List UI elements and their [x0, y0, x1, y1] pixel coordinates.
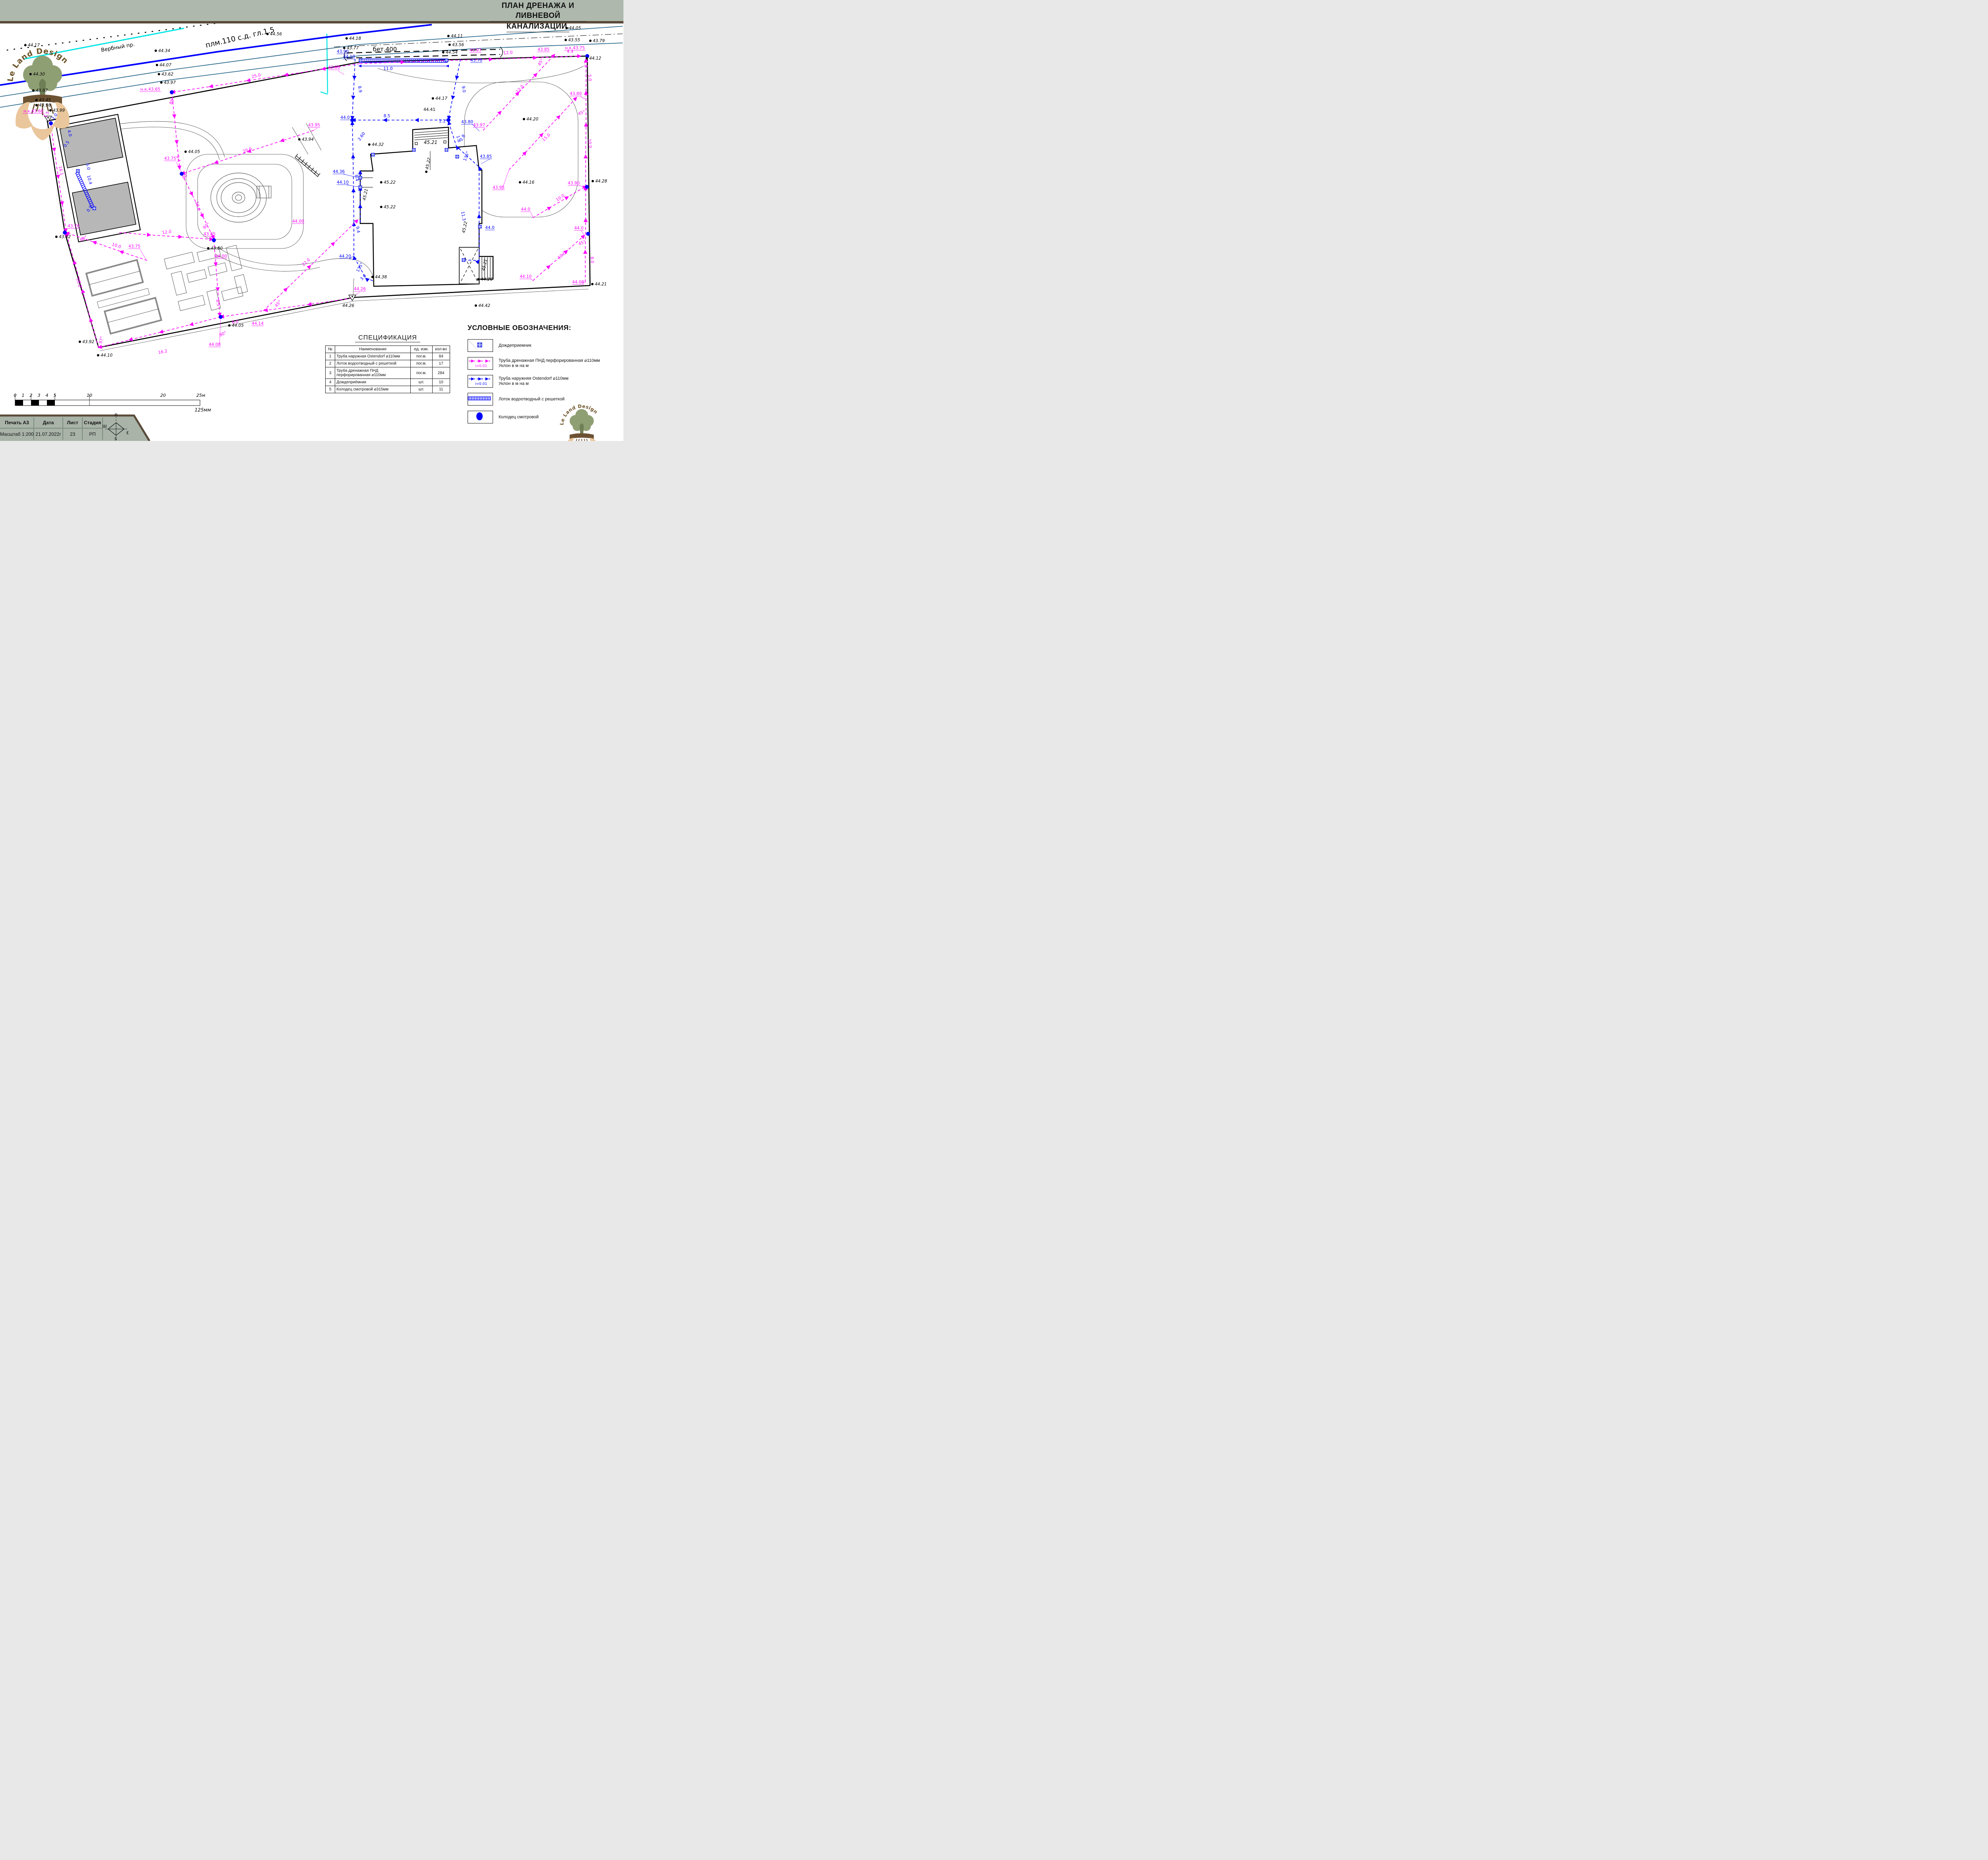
svg-text:5.0: 5.0: [587, 74, 592, 82]
svg-text:44.0: 44.0: [521, 207, 530, 212]
plan-label: 8.4: [354, 174, 360, 182]
plan-label: s: [115, 436, 117, 441]
plan-label: 44.20: [523, 117, 539, 122]
svg-text:44.10: 44.10: [337, 180, 349, 185]
deck: [459, 247, 479, 284]
spec-row: 3Труба дренажная ПНД перфорированная ⌀11…: [326, 367, 450, 379]
plan-label: 8.5: [384, 114, 390, 118]
svg-text:43.97: 43.97: [473, 123, 485, 128]
svg-text:44.17: 44.17: [435, 96, 447, 101]
svg-text:20.0: 20.0: [242, 147, 252, 154]
inspection-well: [170, 90, 174, 94]
svg-text:44.38: 44.38: [375, 275, 387, 280]
plan-label: 44.0: [485, 225, 495, 230]
plan-label: ε: [126, 430, 129, 435]
svg-text:n: n: [115, 412, 118, 417]
plan-label: 43.95: [308, 123, 320, 128]
rain-inlet: [412, 148, 415, 151]
plan-label: 11.0: [383, 66, 392, 71]
plan-label: 10.0: [111, 242, 122, 249]
drain-pipe-icon: i=0.01: [468, 357, 493, 370]
svg-text:43.75: 43.75: [128, 244, 140, 249]
svg-text:43.99: 43.99: [53, 108, 65, 113]
svg-text:43.45: 43.45: [39, 98, 51, 103]
plan-label: 5: [54, 393, 56, 398]
plan-label: 135°: [355, 262, 365, 273]
svg-text:44.10: 44.10: [343, 54, 355, 59]
plan-label: 3: [38, 393, 41, 398]
scale-bar: [15, 394, 200, 406]
svg-text:90°: 90°: [202, 222, 211, 230]
svg-text:43.97: 43.97: [36, 88, 48, 93]
svg-text:10: 10: [87, 393, 92, 398]
svg-text:3: 3: [38, 393, 41, 398]
legend-item-outer-pipe: i=0.01 Труба наружняя Ostendorf ⌀110мм У…: [468, 375, 623, 388]
legend-item-drain-pipe: i=0.01 Труба дренажная ПНД перфорированн…: [468, 357, 623, 370]
svg-text:0: 0: [14, 393, 17, 398]
title-block: Печать А3 Дата Лист Стадия Масштаб 1:200…: [0, 417, 103, 440]
inspection-well: [212, 238, 216, 242]
svg-text:1.2: 1.2: [583, 61, 588, 68]
plan-label: 43.85: [480, 154, 492, 159]
plan-label: 44.08: [572, 280, 584, 285]
svg-text:2: 2: [30, 393, 33, 398]
plan-label: 16.2: [158, 349, 168, 355]
svg-text:25м: 25м: [196, 393, 205, 398]
svg-text:12.0: 12.0: [503, 50, 513, 56]
plan-label: 9.4: [355, 226, 361, 233]
plan-label: 8.0: [589, 256, 594, 264]
svg-text:44.16: 44.16: [522, 180, 534, 185]
plan-label: н.к.43.60: [23, 109, 45, 114]
plan-label: ш: [103, 423, 107, 429]
svg-text:44.07: 44.07: [159, 63, 171, 68]
legend-title: УСЛОВНЫЕ ОБОЗНАЧЕНИЯ:: [468, 324, 623, 332]
plan-label: 43.75: [128, 244, 140, 249]
svg-text:1.1: 1.1: [439, 119, 446, 124]
spec-row: 4Дождеприёмникшт.10: [326, 379, 450, 386]
legend-label2: Уклон в м на м: [499, 381, 529, 386]
sheet: Le Land Design: [0, 0, 623, 441]
svg-text:8.5: 8.5: [215, 299, 221, 307]
svg-text:44.17: 44.17: [28, 43, 40, 48]
svg-text:43.85: 43.85: [204, 232, 215, 237]
svg-text:9.0: 9.0: [461, 85, 467, 93]
plan-label: 44.36: [333, 169, 345, 174]
plan-label: 6.0: [231, 319, 239, 325]
legend-label: Дождеприемник: [499, 343, 531, 348]
svg-text:44.26: 44.26: [342, 303, 354, 308]
svg-text:44.36: 44.36: [333, 169, 345, 174]
rain-inlet: [76, 169, 80, 173]
svg-text:12.0: 12.0: [515, 84, 525, 94]
svg-text:8.9: 8.9: [357, 85, 363, 93]
plan-label: 2.60: [357, 131, 366, 142]
svg-text:43.79: 43.79: [593, 39, 605, 43]
svg-text:5: 5: [54, 393, 56, 398]
svg-text:44.56: 44.56: [270, 32, 282, 37]
legend-item-rain-inlet: Дождеприемник: [468, 339, 623, 352]
spec-row: 5Колодец смотровой ⌀315ммшт.11: [326, 386, 450, 393]
svg-text:22.0: 22.0: [301, 257, 311, 267]
svg-text:45.22: 45.22: [384, 180, 396, 185]
svg-text:44.28: 44.28: [595, 179, 607, 184]
svg-text:16.2: 16.2: [158, 349, 168, 355]
svg-text:12.0: 12.0: [162, 229, 172, 235]
plan-label: 43.79: [589, 39, 605, 43]
svg-text:44.12: 44.12: [589, 56, 601, 61]
svg-text:43.70: 43.70: [470, 58, 482, 63]
svg-text:44.32: 44.32: [372, 142, 384, 147]
svg-text:43.76: 43.76: [68, 224, 80, 229]
legend-item-drainage-tray: Лоток водоотводный с решеткой: [468, 393, 623, 406]
svg-text:43.94: 43.94: [302, 137, 314, 142]
drainage-tray-icon: [468, 393, 493, 406]
inspection-well: [219, 315, 223, 319]
svg-text:43.97: 43.97: [164, 80, 176, 85]
rain-inlet-icon: [468, 339, 493, 352]
spec-row: 2Лоток водоотводный с решеткойпог.м.17: [326, 360, 450, 367]
svg-text:ε: ε: [126, 430, 129, 435]
plan-label: 12.0: [515, 84, 525, 94]
plan-label: 25м: [196, 393, 205, 398]
svg-text:44.41: 44.41: [423, 107, 435, 112]
svg-text:43.85: 43.85: [538, 47, 549, 52]
svg-text:97°: 97°: [98, 336, 105, 344]
svg-text:н.к.43.65: н.к.43.65: [140, 87, 160, 92]
plan-label: 44.00: [215, 254, 227, 259]
spec-title: СПЕЦИФИКАЦИЯ: [355, 334, 420, 342]
planter-maze: [164, 241, 250, 318]
plan-label: 5.0: [587, 74, 592, 82]
plan-label: 4: [46, 393, 49, 398]
plan-label: 9.0: [461, 85, 467, 93]
svg-text:16.1: 16.1: [58, 166, 64, 176]
inspection-well-icon: [468, 411, 493, 423]
plan-label: 44.08: [209, 342, 221, 347]
plan-label: 25.0: [251, 73, 261, 80]
plan-label: 43.90: [328, 65, 340, 70]
legend-label: Лоток водоотводный с решеткой: [499, 397, 565, 402]
greenhouses: [86, 258, 161, 336]
plan-label: 44.28: [592, 179, 608, 184]
sheet-title-line1: ПЛАН ДРЕНАЖА И ЛИВНЕВОЙ: [490, 1, 586, 21]
plan-label: 20.0: [242, 147, 252, 154]
svg-text:43.82: 43.82: [59, 235, 71, 239]
svg-text:10.6: 10.6: [194, 201, 201, 211]
plan-label: н.к.43.75: [564, 46, 586, 50]
svg-text:43.75: 43.75: [164, 156, 176, 161]
legend-item-inspection-well: Колодец смотровой: [468, 411, 623, 423]
legend-label: Труба наружняя Ostendorf ⌀110мм: [499, 376, 569, 381]
svg-text:44.34: 44.34: [158, 49, 170, 53]
plan-label: 45°: [578, 239, 586, 247]
tb-label-date: Дата: [34, 417, 63, 428]
plan-label: 43.97: [470, 48, 481, 53]
svg-text:44.0: 44.0: [485, 225, 494, 230]
spec-header: кол-во: [432, 346, 450, 353]
plan-label: 90°: [219, 330, 227, 338]
svg-text:i=0.01: i=0.01: [475, 364, 487, 368]
svg-text:16.2: 16.2: [75, 278, 82, 288]
plan-label: 43.75: [164, 156, 176, 161]
inspection-well: [49, 121, 53, 125]
plan-label: 44.0: [521, 207, 530, 212]
plan-label: 44.11: [447, 34, 463, 39]
svg-text:45°: 45°: [537, 58, 545, 66]
svg-text:45.21: 45.21: [424, 140, 437, 145]
plan-label: 44.10: [343, 54, 355, 59]
spec-header: Наименование: [335, 346, 411, 353]
legend-label: Труба дренажная ПНД перфорированная ⌀110…: [499, 358, 600, 363]
svg-text:44.0: 44.0: [574, 226, 583, 231]
plan-label: 125мм: [194, 407, 211, 413]
legend: УСЛОВНЫЕ ОБОЗНАЧЕНИЯ: Дождеприемник i=0.…: [468, 324, 623, 429]
svg-text:125мм: 125мм: [194, 407, 211, 413]
svg-text:43.85: 43.85: [480, 154, 492, 159]
plan-label: 90°: [202, 222, 211, 230]
plan-label: 44.20: [339, 254, 351, 259]
inspection-well: [585, 185, 589, 189]
plan-label: 43.85: [204, 232, 215, 237]
svg-text:45.22: 45.22: [384, 205, 396, 210]
rain-inlet: [359, 59, 362, 62]
spec-header: ед. изм.: [411, 346, 433, 353]
svg-text:44.20: 44.20: [339, 254, 351, 259]
tb-value-date: 21.07.2022г: [34, 428, 63, 440]
svg-text:45°: 45°: [577, 109, 586, 116]
plan-label: 44.21: [591, 282, 607, 287]
tb-label-print: Печать А3: [0, 417, 34, 428]
tb-value-sheet: 23: [63, 428, 82, 440]
svg-text:10.0: 10.0: [555, 193, 565, 202]
plan-label: 45°: [274, 299, 282, 308]
svg-text:11.0: 11.0: [383, 66, 392, 71]
svg-text:43.95: 43.95: [493, 185, 505, 190]
plan-label: 10: [87, 393, 92, 398]
plan-label: 10.0: [587, 139, 592, 148]
svg-text:43.80: 43.80: [570, 91, 582, 96]
tb-value-scale: Масштаб 1:200: [0, 428, 34, 440]
plan-label: 44.16: [519, 180, 535, 185]
svg-text:44.20: 44.20: [526, 117, 538, 122]
plan-label: 8.5: [215, 299, 221, 307]
plan-label: 3.0: [359, 274, 367, 282]
svg-text:8.0: 8.0: [589, 256, 594, 264]
rain-inlet: [478, 225, 481, 228]
svg-text:3.0: 3.0: [359, 274, 367, 282]
plan-label: 43.55: [565, 38, 580, 43]
inspection-well: [586, 232, 590, 236]
plan-label: 16.1: [58, 166, 64, 176]
svg-text:44.08: 44.08: [572, 280, 584, 285]
svg-text:44.18: 44.18: [349, 36, 361, 41]
tb-label-stage: Стадия: [82, 417, 103, 428]
plan-label: 44.41: [423, 107, 435, 112]
svg-text:43.62: 43.62: [161, 72, 173, 77]
plan-label: 20: [160, 393, 166, 398]
plan-label: 44.18: [346, 36, 361, 41]
rain-inlet: [445, 148, 448, 151]
svg-text:н.к.43.75: н.к.43.75: [565, 46, 585, 50]
plan-label: 2: [30, 393, 33, 398]
legend-label: Колодец смотровой: [499, 415, 539, 420]
inspection-well: [447, 118, 450, 122]
svg-text:бет.400: бет.400: [373, 46, 397, 53]
svg-text:4: 4: [46, 393, 49, 398]
svg-text:44.10: 44.10: [101, 353, 113, 358]
svg-text:1: 1: [22, 393, 25, 398]
plan-label: n: [115, 412, 118, 417]
plan-label: 43.62: [158, 72, 174, 77]
svg-text:s: s: [115, 436, 117, 441]
svg-text:45°: 45°: [578, 239, 586, 247]
rain-inlet: [371, 153, 375, 156]
svg-text:45°: 45°: [274, 299, 282, 308]
plan-label: 22.0: [301, 257, 311, 267]
svg-text:44.54: 44.54: [446, 50, 458, 55]
svg-text:6.0: 6.0: [231, 319, 239, 325]
plan-label: 43.90: [337, 49, 349, 54]
plan-label: 15.0: [541, 132, 551, 142]
svg-text:9.4: 9.4: [355, 226, 361, 233]
rain-inlet: [462, 258, 465, 262]
plan-label: 10.0: [555, 193, 565, 202]
svg-text:44.26: 44.26: [354, 287, 366, 291]
plan-label: 8.9: [357, 85, 363, 93]
svg-text:10.0: 10.0: [111, 242, 122, 249]
svg-text:43.90: 43.90: [337, 49, 349, 54]
fountain: [211, 173, 271, 222]
svg-text:43.97: 43.97: [470, 48, 481, 53]
plan-label: 44.10: [520, 274, 532, 279]
plan-label: 44.17: [24, 43, 40, 48]
svg-text:2.60: 2.60: [357, 131, 366, 142]
spec-header: №: [326, 346, 335, 353]
plan-label: 44.0: [340, 115, 350, 120]
sheet-title: ПЛАН ДРЕНАЖА И ЛИВНЕВОЙ КАНАЛИЗАЦИИ.: [490, 1, 586, 32]
plan-label: 43.95: [493, 185, 505, 190]
svg-text:44.08: 44.08: [209, 342, 221, 347]
inspection-well: [63, 231, 67, 235]
svg-text:43.56: 43.56: [452, 43, 464, 47]
legend-label2: Уклон в м на м: [499, 363, 529, 368]
svg-text:н.к.43.60: н.к.43.60: [23, 109, 43, 114]
plan-label: 44.17: [432, 96, 448, 101]
plan-label: 43.80: [461, 120, 473, 124]
plan-label: 44.0: [574, 226, 584, 231]
plan-label: 16.2: [75, 278, 82, 288]
plan-label: 1.2: [583, 61, 588, 68]
svg-text:43.80: 43.80: [211, 246, 223, 251]
svg-text:44.42: 44.42: [478, 303, 490, 308]
plan-label: 44.05: [184, 149, 200, 154]
svg-text:43.55: 43.55: [568, 38, 580, 43]
plan-label: 0: [14, 393, 17, 398]
svg-text:44.0: 44.0: [340, 115, 349, 120]
svg-text:44.26: 44.26: [481, 277, 493, 282]
plan-label: 1: [22, 393, 25, 398]
svg-text:135°: 135°: [355, 262, 365, 273]
plan-label: 12.0: [503, 50, 513, 56]
rain-inlet: [456, 155, 459, 158]
rain-inlet: [359, 186, 362, 189]
plan-label: 44.00: [292, 219, 304, 224]
plan-label: 44.26: [354, 287, 366, 291]
plan-label: 43.56: [448, 43, 464, 47]
plan-label: 43.90: [568, 181, 580, 186]
svg-text:8.5: 8.5: [384, 114, 390, 118]
plan-label: 43.70: [470, 58, 482, 63]
svg-text:8.4: 8.4: [354, 174, 360, 182]
plan-label: 44.26: [342, 303, 354, 308]
svg-text:44.10: 44.10: [520, 274, 532, 279]
plan-label: 43.80: [570, 91, 582, 96]
svg-text:43.90: 43.90: [568, 181, 580, 186]
svg-text:20: 20: [160, 393, 166, 398]
plan-label: 44.32: [368, 142, 384, 147]
svg-text:43.98: 43.98: [39, 103, 51, 108]
spec-row: 1Труба наружная Ostendorf ⌀110ммпог.м.84: [326, 353, 450, 360]
plan-label: 10.6: [194, 201, 201, 211]
plan-label: 43.85: [538, 47, 549, 52]
spec-table: № Наименование ед. изм. кол-во 1Труба на…: [325, 346, 450, 393]
rain-inlet: [445, 59, 448, 62]
inspection-well: [350, 118, 354, 122]
tb-value-stage: РП: [82, 428, 103, 440]
plan-label: 44.10: [97, 353, 113, 358]
svg-text:90°: 90°: [219, 330, 227, 338]
svg-text:15.0: 15.0: [541, 132, 551, 142]
plan-label: 12.0: [162, 229, 172, 235]
plan-label: 44.14: [252, 321, 264, 326]
plan-label: 97°: [98, 336, 105, 344]
svg-text:44.05: 44.05: [188, 149, 200, 154]
plan-label: 43.97: [473, 123, 485, 128]
tb-label-sheet: Лист: [63, 417, 82, 428]
plan-label: 43.92: [79, 340, 95, 344]
svg-text:ш: ш: [103, 423, 107, 429]
plan-label: 44.07: [156, 63, 172, 68]
plan-label: 44.34: [155, 49, 170, 53]
outer-pipe-icon: i=0.01: [468, 375, 493, 388]
plan-label: 44.42: [475, 303, 491, 308]
spec-header-row: № Наименование ед. изм. кол-во: [326, 346, 450, 353]
svg-text:25.0: 25.0: [251, 73, 261, 80]
svg-text:43.90: 43.90: [328, 65, 340, 70]
svg-text:44.30: 44.30: [33, 72, 45, 77]
sheet-title-line2: КАНАЛИЗАЦИИ.: [507, 21, 569, 32]
plan-label: 43.82: [55, 235, 71, 239]
svg-text:44.00: 44.00: [292, 219, 304, 224]
plan-label: 45°: [577, 109, 586, 116]
plan-label: бет.400: [373, 46, 397, 53]
plan-label: 43.76: [68, 224, 80, 229]
plan-label: 43.80: [207, 246, 223, 251]
svg-text:44.11: 44.11: [451, 34, 463, 39]
svg-text:i=0.01: i=0.01: [475, 382, 487, 386]
plan-label: 45°: [537, 58, 545, 66]
plan-label: 45.21: [424, 140, 437, 145]
plan-label: 1.1: [439, 119, 446, 124]
svg-text:10.0: 10.0: [587, 139, 592, 148]
plan-label: 44.10: [337, 180, 349, 185]
garden-stairs: [295, 154, 320, 177]
svg-text:43.95: 43.95: [308, 123, 320, 128]
svg-text:43.92: 43.92: [82, 340, 94, 344]
specification: СПЕЦИФИКАЦИЯ № Наименование ед. изм. кол…: [325, 334, 450, 393]
svg-text:43.80: 43.80: [461, 120, 473, 124]
